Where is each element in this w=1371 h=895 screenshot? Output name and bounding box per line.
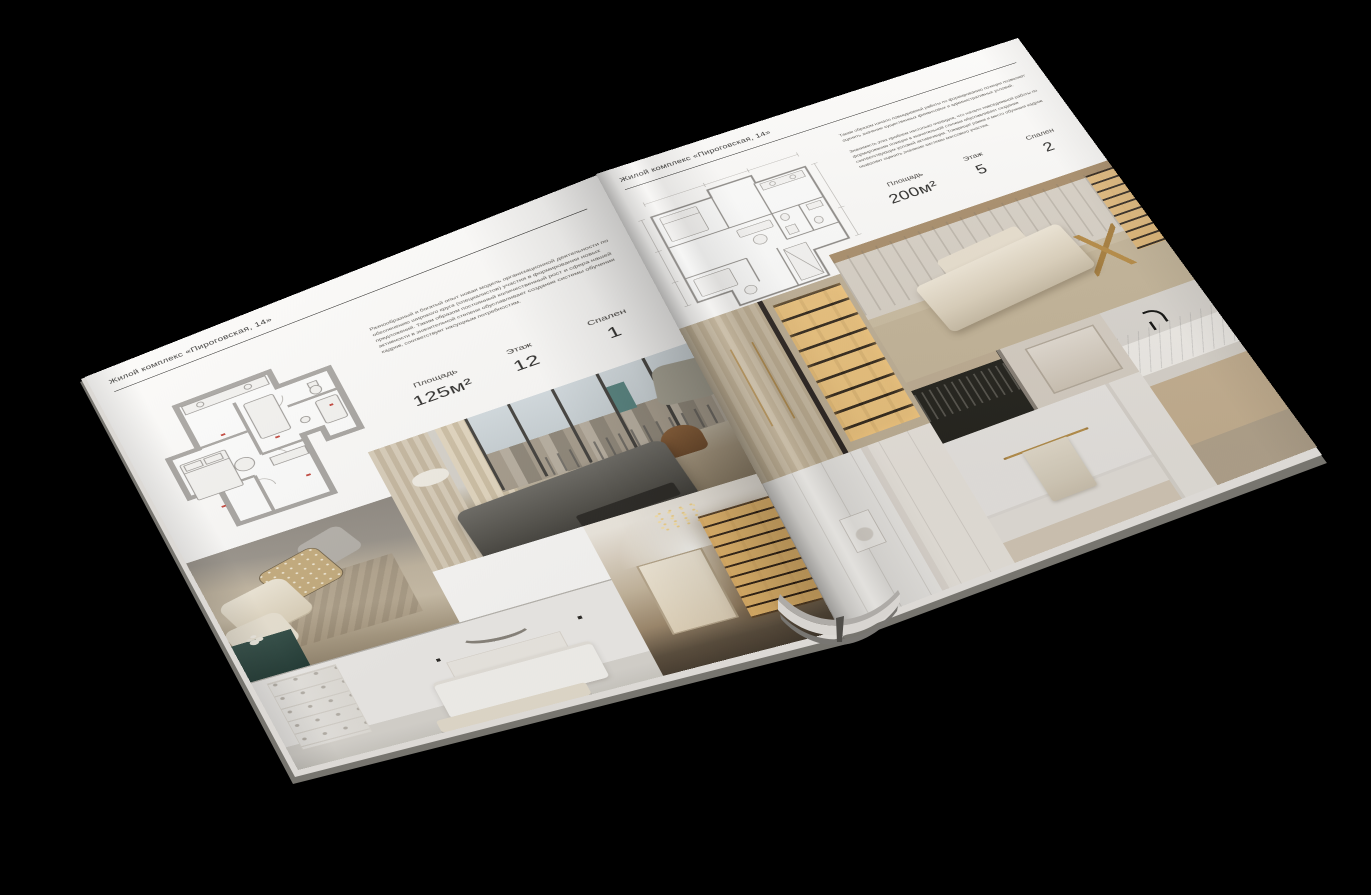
stat-area: Площадь 125м²	[393, 360, 488, 414]
stat-floor: Этаж 12	[475, 330, 574, 386]
brochure-mockup-scene: Жилой комплекс «Пироговская, 14»	[0, 0, 1371, 895]
black-faucet	[1142, 307, 1169, 327]
lamp	[409, 465, 452, 490]
sconce	[577, 615, 582, 619]
paper-holder	[839, 509, 887, 553]
stat-bedrooms: Спален 2	[1004, 120, 1086, 164]
shelving-unit	[266, 664, 371, 750]
stat-bedrooms: Спален 1	[560, 298, 664, 356]
cabinet-handles	[729, 350, 773, 427]
stat-floor: Этаж 5	[937, 142, 1020, 187]
sconce	[436, 658, 441, 662]
stat-area: Площадь 200м²	[869, 165, 953, 211]
